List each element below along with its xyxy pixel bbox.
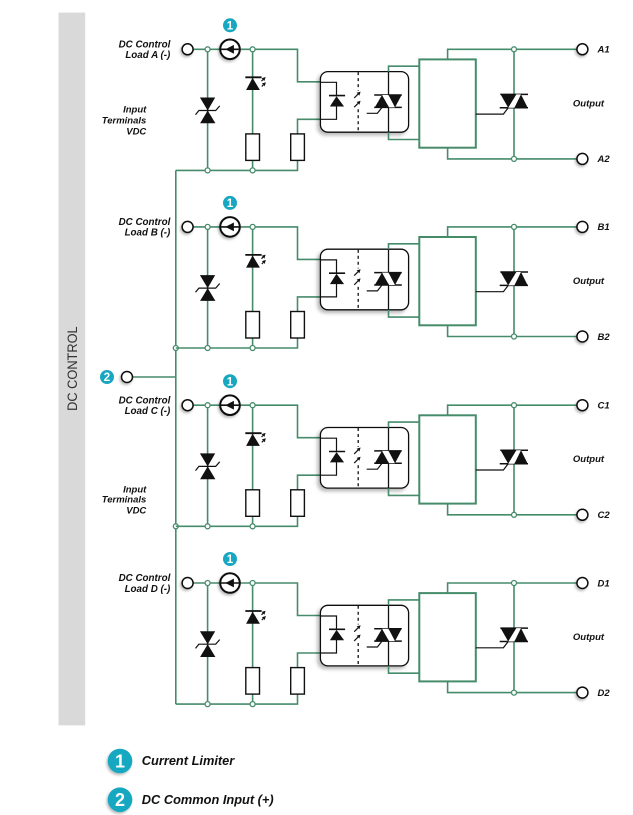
svg-text:Output: Output — [573, 632, 605, 643]
svg-text:A1: A1 — [597, 45, 610, 56]
svg-text:DC Control: DC Control — [119, 573, 171, 584]
svg-text:C2: C2 — [598, 510, 611, 521]
svg-text:A2: A2 — [597, 154, 611, 165]
svg-text:1: 1 — [227, 376, 234, 388]
svg-text:2: 2 — [104, 372, 110, 384]
svg-text:D1: D1 — [598, 578, 610, 589]
svg-text:Load C (-): Load C (-) — [125, 406, 171, 417]
svg-text:DC CONTROL: DC CONTROL — [64, 326, 80, 411]
svg-text:Output: Output — [573, 98, 605, 109]
svg-text:Output: Output — [573, 276, 605, 287]
svg-text:B2: B2 — [598, 332, 611, 343]
svg-text:Input: Input — [123, 105, 147, 116]
svg-text:Load D (-): Load D (-) — [125, 584, 171, 595]
svg-text:Terminals: Terminals — [102, 116, 147, 127]
svg-text:D2: D2 — [598, 688, 611, 699]
svg-text:1: 1 — [227, 21, 234, 33]
svg-text:B1: B1 — [598, 222, 610, 233]
svg-text:Current Limiter: Current Limiter — [142, 753, 235, 768]
svg-text:Output: Output — [573, 454, 605, 465]
svg-text:1: 1 — [227, 198, 234, 210]
svg-text:Load B (-): Load B (-) — [125, 228, 171, 239]
svg-text:1: 1 — [227, 554, 234, 566]
svg-text:DC Control: DC Control — [119, 395, 171, 406]
svg-text:Terminals: Terminals — [102, 495, 147, 506]
svg-text:VDC: VDC — [126, 505, 146, 516]
svg-text:DC Control: DC Control — [119, 217, 171, 228]
svg-text:1: 1 — [115, 751, 125, 771]
svg-text:Load A (-): Load A (-) — [125, 50, 170, 61]
svg-text:VDC: VDC — [126, 127, 146, 138]
svg-text:DC Control: DC Control — [119, 40, 171, 51]
svg-text:2: 2 — [115, 790, 125, 810]
svg-text:C1: C1 — [598, 401, 610, 412]
svg-text:DC Common Input (+): DC Common Input (+) — [142, 792, 274, 807]
